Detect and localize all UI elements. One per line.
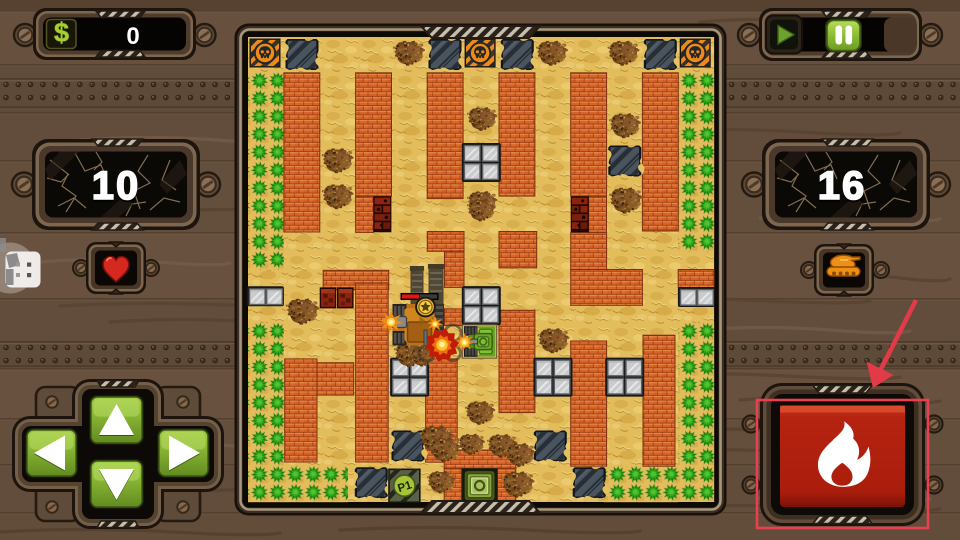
- svg-text:16: 16: [818, 164, 867, 208]
- svg-text:10: 10: [92, 164, 141, 208]
- svg-text:0: 0: [126, 23, 139, 50]
- svg-text:$: $: [54, 18, 69, 48]
